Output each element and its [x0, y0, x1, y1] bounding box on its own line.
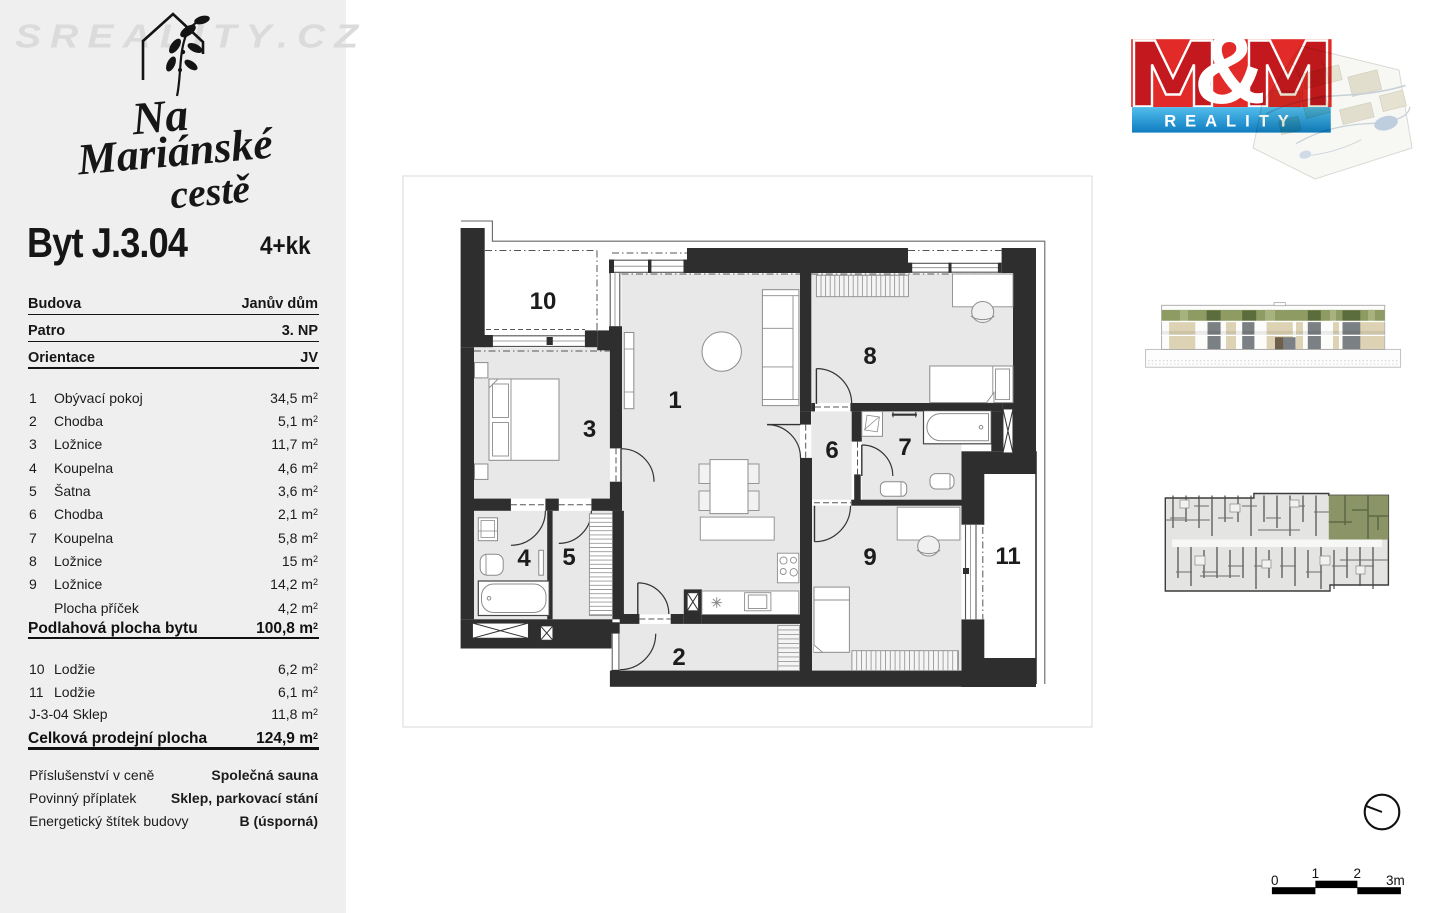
svg-text:3: 3: [583, 416, 596, 443]
svg-text:9: 9: [863, 544, 876, 571]
svg-text:3m: 3m: [1386, 873, 1405, 888]
svg-text:2: 2: [1354, 866, 1362, 881]
svg-text:8: 8: [863, 343, 876, 370]
svg-text:2: 2: [672, 644, 685, 671]
svg-text:0: 0: [1271, 873, 1279, 888]
svg-text:6: 6: [825, 437, 838, 464]
svg-text:7: 7: [898, 434, 911, 461]
svg-text:10: 10: [530, 288, 557, 315]
svg-text:1: 1: [668, 387, 681, 414]
svg-text:4: 4: [517, 545, 531, 572]
svg-text:1: 1: [1312, 866, 1320, 881]
svg-text:11: 11: [995, 543, 1020, 570]
svg-text:5: 5: [562, 544, 575, 571]
